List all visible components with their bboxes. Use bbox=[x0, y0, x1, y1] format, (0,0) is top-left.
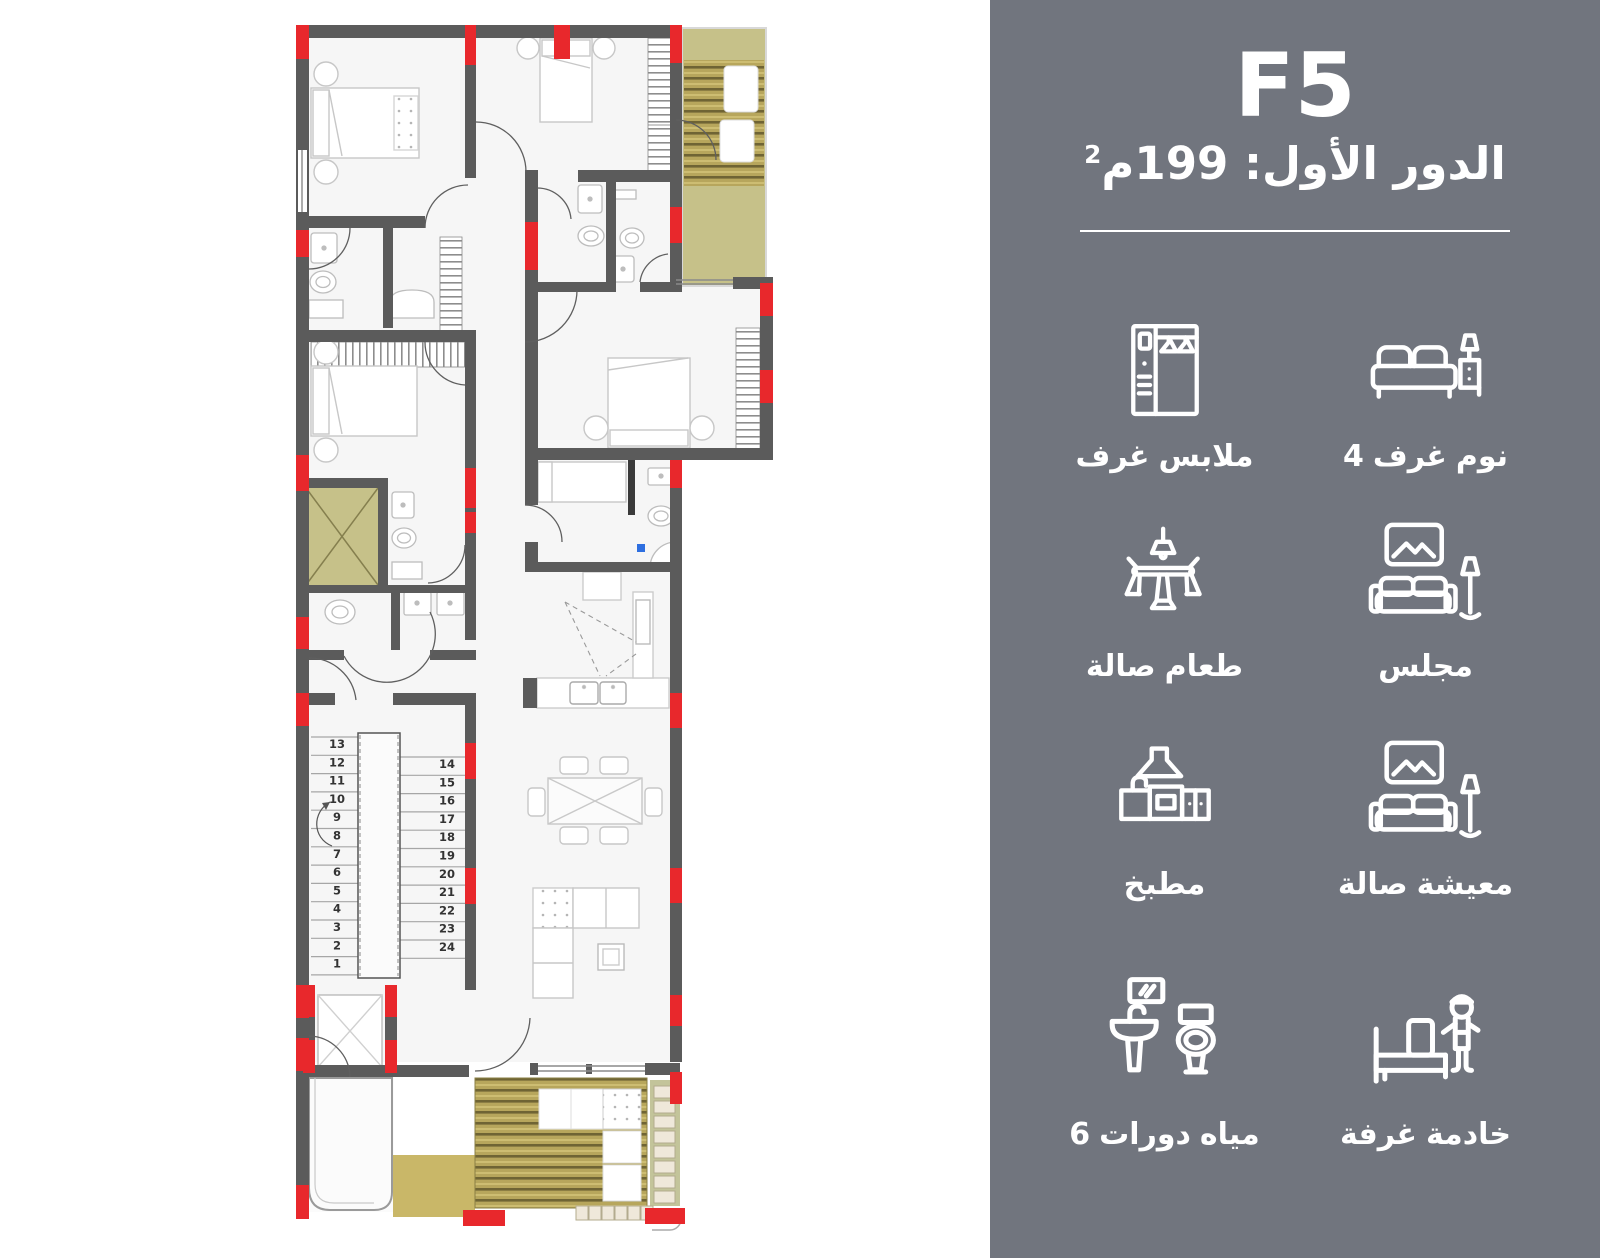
svg-text:9: 9 bbox=[333, 810, 341, 824]
label-word: ملابس bbox=[1158, 439, 1253, 474]
sofa-lamp-icon bbox=[1367, 729, 1485, 855]
label-word: دورات bbox=[1099, 1117, 1191, 1152]
floor-plan-drawing: 13121110987654321 1415161718192021222324 bbox=[0, 0, 990, 1258]
label-word: صالة bbox=[1086, 649, 1156, 684]
feature-label: مطبخ bbox=[1124, 867, 1206, 902]
bed-icon bbox=[1367, 301, 1485, 427]
wardrobe-icon bbox=[1109, 301, 1221, 427]
svg-text:19: 19 bbox=[439, 849, 455, 863]
divider-line bbox=[1080, 230, 1510, 232]
svg-text:11: 11 bbox=[329, 774, 345, 788]
label-word: نوم bbox=[1456, 439, 1508, 474]
svg-text:14: 14 bbox=[439, 757, 455, 771]
svg-text:12: 12 bbox=[329, 755, 345, 769]
feature-bedrooms: 4غرفنوم bbox=[1295, 274, 1556, 474]
label-word: مطبخ bbox=[1124, 867, 1206, 902]
kitchen-icon bbox=[1108, 729, 1222, 855]
svg-text:4: 4 bbox=[333, 902, 341, 916]
svg-text:24: 24 bbox=[439, 940, 455, 954]
floor-drain-marker bbox=[637, 544, 645, 552]
label-word: خادمة bbox=[1426, 1117, 1511, 1152]
svg-text:5: 5 bbox=[333, 883, 341, 897]
svg-text:22: 22 bbox=[439, 903, 455, 917]
svg-text:1: 1 bbox=[333, 957, 341, 971]
label-word: 6 bbox=[1069, 1117, 1090, 1152]
feature-dining-room: صالةطعام bbox=[1034, 474, 1295, 684]
svg-text:16: 16 bbox=[439, 794, 455, 808]
label-word: غرفة bbox=[1340, 1117, 1417, 1152]
dining-table-icon bbox=[1109, 511, 1221, 637]
label-word: 4 bbox=[1343, 439, 1364, 474]
feature-label: 6دوراتمياه bbox=[1069, 1117, 1259, 1152]
svg-text:15: 15 bbox=[439, 775, 455, 789]
brochure-page: 13121110987654321 1415161718192021222324 bbox=[0, 0, 1600, 1258]
label-word: غرف bbox=[1373, 439, 1447, 474]
svg-text:8: 8 bbox=[333, 829, 341, 843]
svg-text:23: 23 bbox=[439, 922, 455, 936]
svg-text:10: 10 bbox=[329, 792, 345, 806]
label-word: طعام bbox=[1165, 649, 1243, 684]
svg-text:7: 7 bbox=[333, 847, 341, 861]
maid-room-icon bbox=[1361, 963, 1491, 1105]
svg-text:21: 21 bbox=[439, 885, 455, 899]
label-word: صالة bbox=[1338, 867, 1408, 902]
feature-living-room: صالةمعيشة bbox=[1295, 684, 1556, 902]
terrace bbox=[393, 1078, 681, 1230]
balcony bbox=[682, 28, 766, 286]
feature-maid-room: غرفةخادمة bbox=[1295, 902, 1556, 1152]
feature-label: صالةمعيشة bbox=[1338, 867, 1513, 902]
floor-area-subtitle: الدور الأول: 199م2 bbox=[990, 137, 1600, 190]
svg-text:6: 6 bbox=[333, 865, 341, 879]
label-word: مياه bbox=[1200, 1117, 1260, 1152]
feature-label: مجلس bbox=[1378, 649, 1473, 684]
feature-label: غرفةخادمة bbox=[1340, 1117, 1511, 1152]
light-well bbox=[306, 488, 378, 585]
area-superscript: 2 bbox=[1084, 140, 1101, 169]
svg-text:3: 3 bbox=[333, 920, 341, 934]
svg-text:17: 17 bbox=[439, 812, 455, 826]
sofa-lamp-icon bbox=[1367, 511, 1485, 637]
svg-text:18: 18 bbox=[439, 830, 455, 844]
svg-text:20: 20 bbox=[439, 867, 455, 881]
feature-label: غرفملابس bbox=[1075, 439, 1253, 474]
svg-text:13: 13 bbox=[329, 737, 345, 751]
feature-dressing-rooms: غرفملابس bbox=[1034, 274, 1295, 474]
bathroom-icon bbox=[1099, 963, 1231, 1105]
feature-kitchen: مطبخ bbox=[1034, 684, 1295, 902]
feature-label: صالةطعام bbox=[1086, 649, 1243, 684]
label-word: غرف bbox=[1075, 439, 1149, 474]
feature-majlis: مجلس bbox=[1295, 474, 1556, 684]
label-word: معيشة bbox=[1417, 867, 1513, 902]
feature-bathrooms: 6دوراتمياه bbox=[1034, 902, 1295, 1152]
floor-plan: 13121110987654321 1415161718192021222324 bbox=[0, 0, 990, 1258]
feature-label: 4غرفنوم bbox=[1343, 439, 1508, 474]
info-sidebar: F5 الدور الأول: 199م2 bbox=[990, 0, 1600, 1258]
floor-area-text: الدور الأول: 199م bbox=[1101, 137, 1505, 190]
svg-text:2: 2 bbox=[333, 938, 341, 952]
stair-numbers-right: 1415161718192021222324 bbox=[439, 757, 455, 954]
unit-title: F5 bbox=[990, 38, 1600, 135]
label-word: مجلس bbox=[1378, 649, 1473, 684]
feature-grid: غرفملابس bbox=[990, 274, 1600, 1152]
